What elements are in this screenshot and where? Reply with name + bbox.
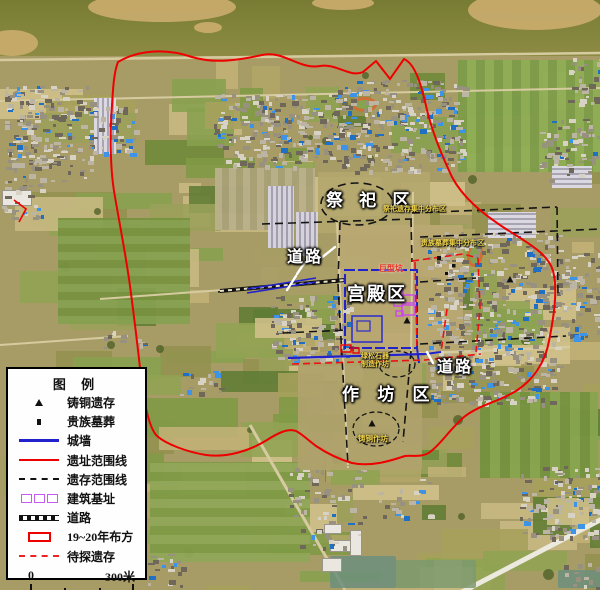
bronze-remains-triangle-icon xyxy=(35,399,43,406)
site-boundary-line-icon xyxy=(19,459,59,462)
noble-tomb-squares xyxy=(437,256,456,275)
legend-label: 铸铜遗存 xyxy=(67,394,115,411)
legend-row: 贵族墓葬 xyxy=(8,412,145,431)
legend-row: 遗存范围线 xyxy=(8,470,145,489)
legend-label: 建筑基址 xyxy=(67,490,115,507)
legend-row: 铸铜遗存 xyxy=(8,393,145,412)
site-map-canvas: 祭 祀 区 道路 宫殿区 道路 作 坊 区 巨型坑 祭祀遗存集中分布区 贵族墓葬… xyxy=(0,0,600,590)
legend-row: 待探遗存 xyxy=(8,547,145,566)
legend-box: 图 例 铸铜遗存 贵族墓葬 城墙 遗址范围线 遗存范围线 建筑基址 xyxy=(6,367,147,580)
legend-row: 19~20年布方 xyxy=(8,527,145,546)
zone-label-palace: 宫殿区 xyxy=(347,280,407,306)
building-foundation-icon xyxy=(21,494,32,503)
scale-start-label: 0 xyxy=(28,568,34,585)
zone-label-road-1: 道路 xyxy=(287,243,323,267)
scale-end-label: 300米 xyxy=(105,568,135,585)
building-foundation-icon xyxy=(34,494,45,503)
remains-boundary-line-icon xyxy=(19,478,59,480)
unexplored-remains-line-icon xyxy=(19,555,59,557)
annotation-bronze-workshop: 铸铜作坊 xyxy=(358,435,388,443)
annotation-sacrifice-distribution: 祭祀遗存集中分布区 xyxy=(383,205,446,213)
zone-label-workshop: 作 坊 区 xyxy=(342,380,437,405)
annotation-noble-tombs-distribution: 贵族墓葬集中分布区 xyxy=(421,239,484,247)
scale-bar xyxy=(30,586,134,590)
legend-label: 道路 xyxy=(67,509,91,526)
legend-row: 遗址范围线 xyxy=(8,451,145,470)
legend-label: 贵族墓葬 xyxy=(67,413,115,430)
legend-row: 城墙 xyxy=(8,431,145,450)
legend-label: 城墙 xyxy=(67,432,91,449)
annotation-turquoise-workshop-line1: 绿松石器 xyxy=(361,352,389,360)
road-line-icon xyxy=(19,515,59,521)
annotation-giant-pit: 巨型坑 xyxy=(379,263,403,274)
excavation-grid-icon xyxy=(28,532,51,542)
legend-row: 建筑基址 xyxy=(8,489,145,508)
legend-label: 19~20年布方 xyxy=(67,528,133,545)
road-lines xyxy=(220,280,345,291)
legend-label: 遗址范围线 xyxy=(67,452,127,469)
city-wall-lines xyxy=(247,270,441,363)
noble-tomb-square-icon xyxy=(37,419,41,425)
legend-label: 遗存范围线 xyxy=(67,471,127,488)
annotation-turquoise-workshop-line2: 制造作坊 xyxy=(361,360,389,368)
zone-label-road-2: 道路 xyxy=(437,353,473,377)
remains-boundary-lines xyxy=(218,183,600,466)
legend-title: 图 例 xyxy=(8,374,145,393)
legend-label: 待探遗存 xyxy=(67,548,115,565)
building-foundation-icon xyxy=(47,494,58,503)
city-wall-line-icon xyxy=(19,439,59,442)
legend-row: 道路 xyxy=(8,508,145,527)
